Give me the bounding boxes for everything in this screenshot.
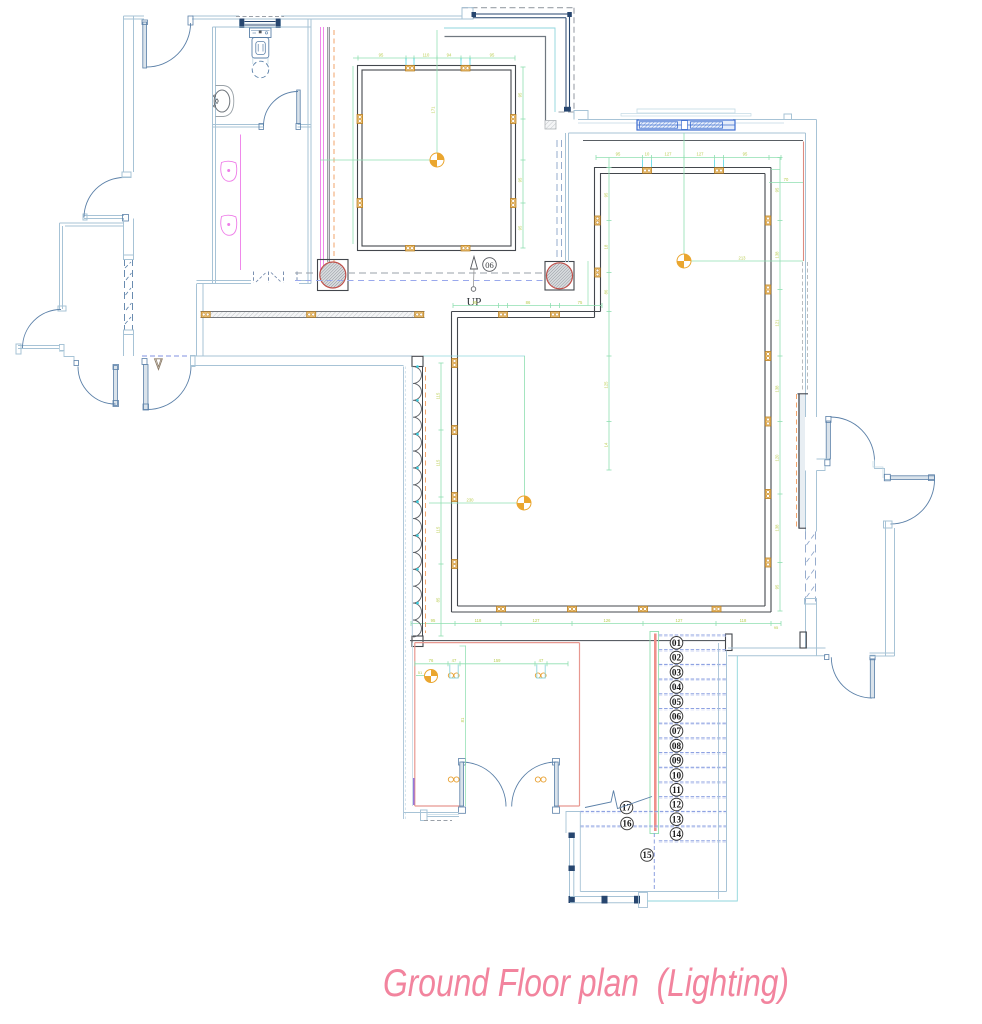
svg-text:94: 94	[447, 53, 452, 58]
svg-text:95: 95	[774, 625, 779, 630]
svg-text:06: 06	[672, 712, 682, 722]
svg-text:159: 159	[494, 658, 502, 663]
svg-text:51: 51	[418, 670, 423, 675]
svg-text:07: 07	[672, 726, 682, 736]
svg-text:76: 76	[429, 658, 434, 663]
svg-text:86: 86	[604, 289, 609, 294]
svg-text:10: 10	[672, 770, 682, 780]
svg-text:126: 126	[604, 618, 612, 623]
svg-text:06: 06	[485, 260, 494, 270]
svg-text:138: 138	[774, 385, 779, 393]
svg-text:95: 95	[518, 225, 523, 230]
svg-text:03: 03	[672, 667, 682, 677]
svg-text:127: 127	[533, 618, 541, 623]
svg-text:81: 81	[460, 717, 465, 722]
svg-text:127: 127	[676, 618, 684, 623]
svg-text:138: 138	[774, 524, 779, 532]
svg-text:12: 12	[672, 800, 682, 810]
svg-text:09: 09	[672, 756, 682, 766]
svg-text:47: 47	[452, 658, 457, 663]
svg-text:95: 95	[604, 192, 609, 197]
svg-text:138: 138	[774, 251, 779, 259]
svg-text:10: 10	[645, 152, 650, 157]
svg-text:05: 05	[672, 697, 682, 707]
svg-text:125: 125	[604, 381, 609, 389]
svg-text:15: 15	[642, 850, 652, 860]
svg-text:115: 115	[436, 392, 441, 399]
svg-text:95: 95	[774, 187, 779, 192]
svg-text:Ground Floor plan (Lighting): Ground Floor plan (Lighting)	[383, 962, 789, 1005]
svg-text:127: 127	[697, 152, 705, 157]
svg-text:95: 95	[616, 152, 621, 157]
svg-text:16: 16	[622, 819, 632, 829]
svg-text:11: 11	[672, 785, 681, 795]
svg-text:75: 75	[578, 300, 583, 305]
svg-text:120: 120	[774, 454, 779, 462]
svg-text:95: 95	[774, 584, 779, 589]
svg-text:118: 118	[475, 618, 482, 623]
svg-text:110: 110	[423, 53, 430, 58]
svg-text:213: 213	[739, 256, 747, 261]
svg-text:95: 95	[379, 53, 384, 58]
svg-text:04: 04	[672, 682, 682, 692]
svg-text:95: 95	[518, 177, 523, 182]
svg-text:230: 230	[467, 498, 475, 503]
svg-text:86: 86	[526, 300, 531, 305]
svg-text:47: 47	[539, 658, 544, 663]
svg-text:127: 127	[665, 152, 673, 157]
svg-text:13: 13	[672, 814, 682, 824]
svg-text:01: 01	[672, 638, 682, 648]
svg-text:02: 02	[672, 653, 682, 663]
svg-text:118: 118	[740, 618, 747, 623]
svg-text:08: 08	[672, 741, 682, 751]
svg-text:171: 171	[431, 106, 436, 114]
svg-text:95: 95	[743, 152, 748, 157]
svg-text:115: 115	[436, 526, 441, 533]
svg-text:95: 95	[490, 53, 495, 58]
svg-text:70: 70	[784, 177, 789, 182]
svg-text:95: 95	[518, 92, 523, 97]
svg-text:95: 95	[431, 618, 436, 623]
svg-text:115: 115	[436, 459, 441, 466]
svg-text:14: 14	[672, 829, 682, 839]
svg-text:18: 18	[604, 244, 609, 249]
svg-text:121: 121	[774, 319, 779, 327]
svg-text:14: 14	[604, 442, 609, 447]
svg-text:95: 95	[473, 300, 478, 305]
svg-text:85: 85	[436, 597, 441, 602]
